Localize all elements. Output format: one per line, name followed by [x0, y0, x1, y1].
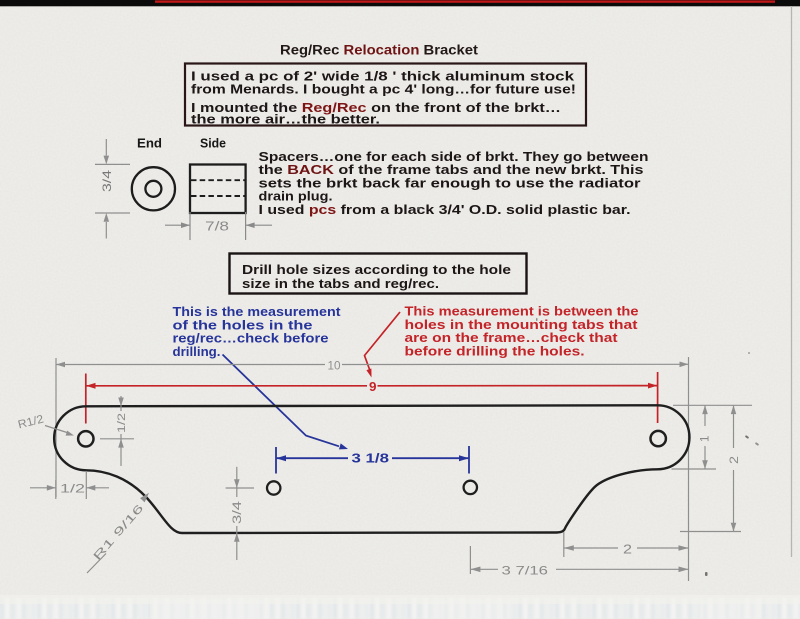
svg-text:This measurement is between th: This measurement is between the	[405, 305, 639, 319]
svg-text:2: 2	[623, 542, 632, 557]
svg-text:drilling.: drilling.	[173, 345, 221, 359]
svg-text:Drill hole sizes according to: Drill hole sizes according to the hole	[242, 262, 511, 277]
svg-text:3/4: 3/4	[100, 170, 114, 192]
svg-text:2: 2	[727, 456, 741, 464]
svg-text:1: 1	[700, 436, 712, 443]
svg-text:of the holes in the: of the holes in the	[173, 318, 313, 332]
svg-text:I used a pc of 2' wide 1/8 ' t: I used a pc of 2' wide 1/8 ' thick alumi…	[191, 70, 574, 84]
svg-text:9: 9	[369, 379, 377, 394]
svg-text:the more air…the better.: the more air…the better.	[191, 113, 380, 127]
svg-text:before drilling the holes.: before drilling the holes.	[405, 344, 585, 358]
svg-text:1/2: 1/2	[116, 413, 128, 433]
svg-text:3/4: 3/4	[232, 500, 244, 524]
svg-text:10: 10	[328, 361, 341, 373]
svg-text:1/2: 1/2	[60, 482, 85, 496]
svg-text:size in the tabs and reg/rec.: size in the tabs and reg/rec.	[242, 276, 439, 291]
svg-text:3 1/8: 3 1/8	[352, 451, 390, 466]
svg-text:are on the frame…check that: are on the frame…check that	[405, 331, 619, 345]
svg-text:from Menards. I bought a pc 4': from Menards. I bought a pc 4' long…for …	[191, 83, 576, 97]
svg-text:Reg/Rec Relocation Bracket: Reg/Rec Relocation Bracket	[280, 43, 479, 58]
svg-text:3 7/16: 3 7/16	[502, 564, 549, 578]
svg-text:End: End	[137, 136, 162, 151]
svg-text:holes in the mounting tabs tha: holes in the mounting tabs that	[405, 318, 639, 332]
svg-text:I used pcs from a black 3/4' O: I used pcs from a black 3/4' O.D. solid …	[259, 202, 631, 217]
svg-text:reg/rec…check before: reg/rec…check before	[173, 332, 329, 346]
svg-text:This is the measurement: This is the measurement	[173, 305, 342, 319]
svg-text:Side: Side	[200, 136, 226, 151]
svg-text:7/8: 7/8	[205, 220, 229, 234]
